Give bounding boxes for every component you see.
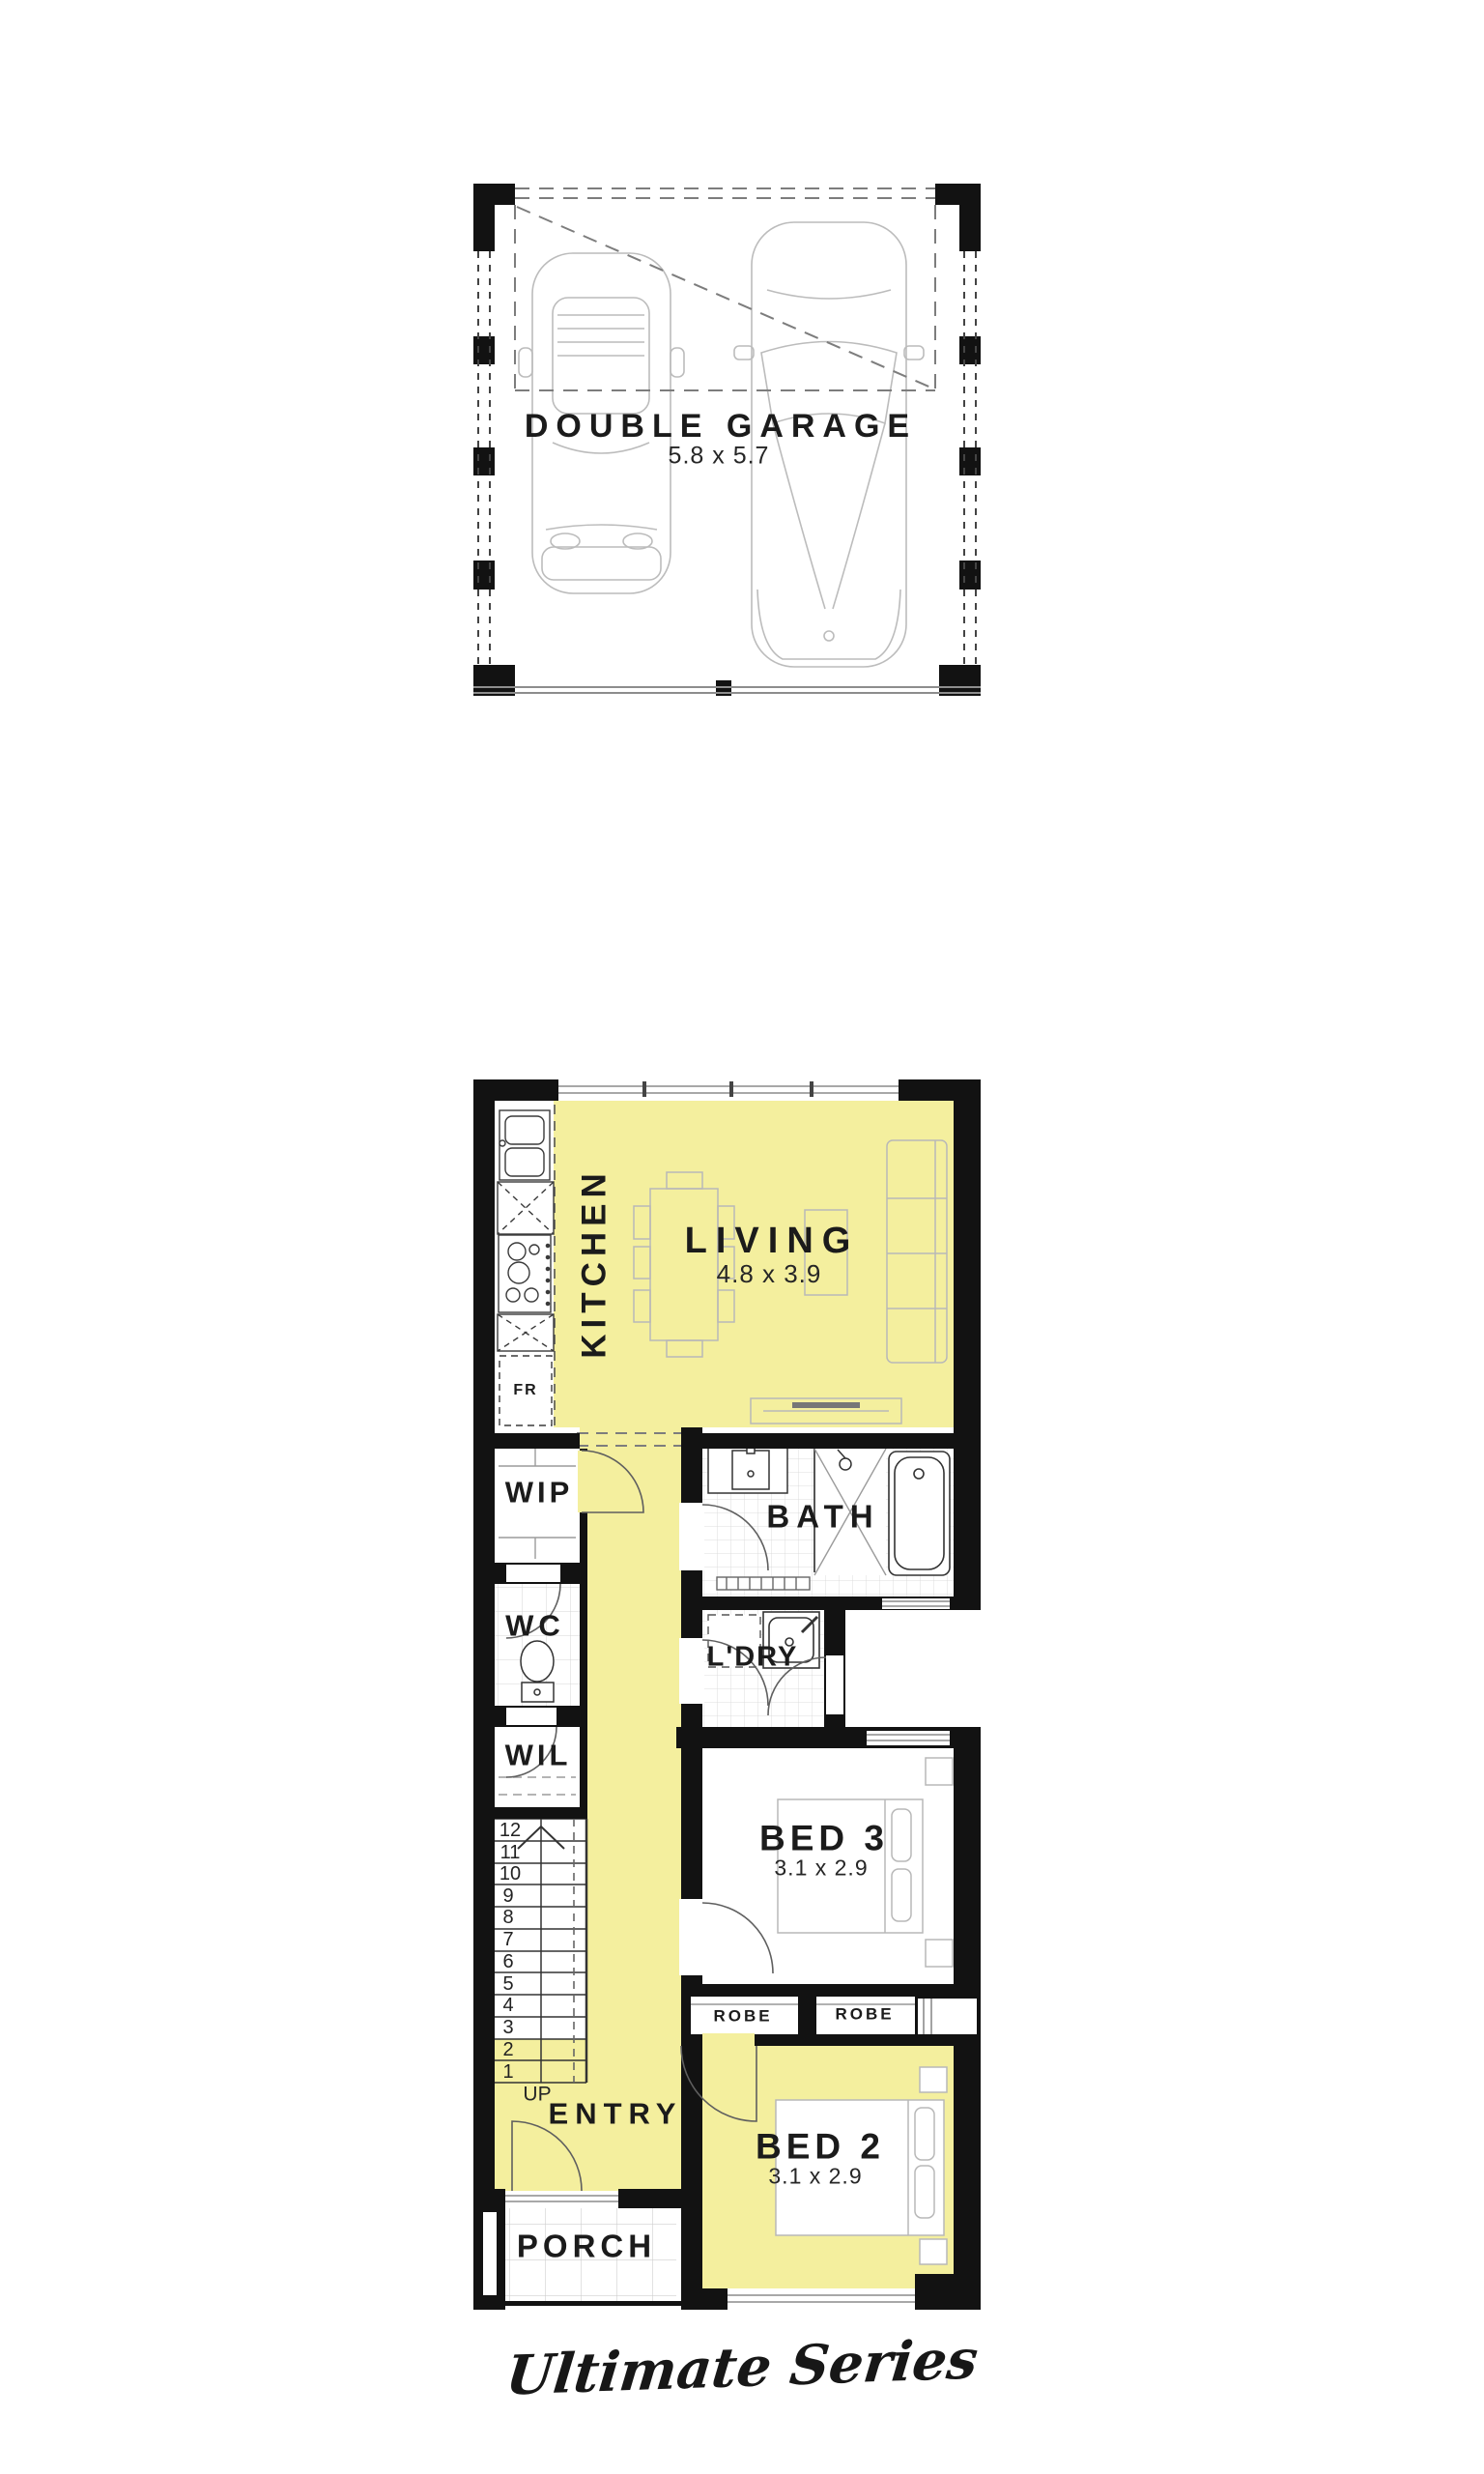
garage-dimensions: 5.8 x 5.7 — [669, 445, 770, 469]
room-label-wip: WIP — [505, 1478, 574, 1508]
vanity-icon — [708, 1445, 787, 1493]
stair-step-6: 6 — [502, 1952, 513, 1971]
room-label-entry: ENTRY — [549, 2099, 683, 2129]
stair-step-8: 8 — [502, 1908, 513, 1927]
bathtub-icon — [889, 1452, 950, 1575]
room-label-laundry: L'DRY — [707, 1644, 799, 1672]
room-label-wc: WC — [505, 1611, 565, 1641]
kitchen-fixtures — [495, 1101, 555, 1427]
fridge-label: FR — [513, 1383, 537, 1398]
room-label-bath: BATH — [766, 1501, 879, 1533]
room-label-porch: PORCH — [517, 2230, 656, 2262]
garage-label: DOUBLE GARAGE — [525, 410, 917, 443]
bed2-dimensions: 3.1 x 2.9 — [768, 2166, 862, 2188]
room-label-kitchen: KITCHEN — [578, 1167, 612, 1359]
stair-step-2: 2 — [502, 2040, 513, 2059]
room-label-bed2: BED 2 — [756, 2129, 885, 2165]
robe-left-label: ROBE — [713, 2008, 772, 2025]
living-dimensions: 4.8 x 3.9 — [717, 1261, 822, 1286]
stair-step-12: 12 — [499, 1821, 521, 1840]
room-label-living: LIVING — [685, 1223, 860, 1259]
ground-floor-plan: KITCHEN FR LIVING 4.8 x 3.9 WIP WC WIL B… — [473, 1079, 981, 2310]
robe-right-label: ROBE — [835, 2006, 894, 2023]
room-label-bed3: BED 3 — [759, 1821, 889, 1856]
room-label-wil: WIL — [505, 1740, 572, 1770]
stair-step-7: 7 — [502, 1930, 513, 1949]
bath-mat-icon — [717, 1577, 810, 1590]
toilet-icon — [521, 1641, 554, 1702]
bed3-dimensions: 3.1 x 2.9 — [774, 1857, 868, 1880]
garage-plan: DOUBLE GARAGE 5.8 x 5.7 — [473, 184, 981, 696]
bed3-door — [702, 1903, 773, 1973]
stair-step-10: 10 — [499, 1864, 521, 1884]
stair-step-5: 5 — [502, 1974, 513, 1994]
stair-step-3: 3 — [502, 2018, 513, 2037]
stair-step-11: 11 — [500, 1843, 521, 1862]
floor-plan-page: DOUBLE GARAGE 5.8 x 5.7 — [0, 0, 1484, 2474]
stair-step-9: 9 — [502, 1886, 513, 1906]
stair-step-1: 1 — [502, 2062, 513, 2082]
stairs-up-label: UP — [523, 2085, 551, 2105]
wil-shelves — [499, 1777, 576, 1795]
stair-step-4: 4 — [502, 1996, 513, 2015]
garage-door-dashes — [515, 188, 935, 390]
series-brand-label: Ultimate Series — [503, 2327, 981, 2407]
